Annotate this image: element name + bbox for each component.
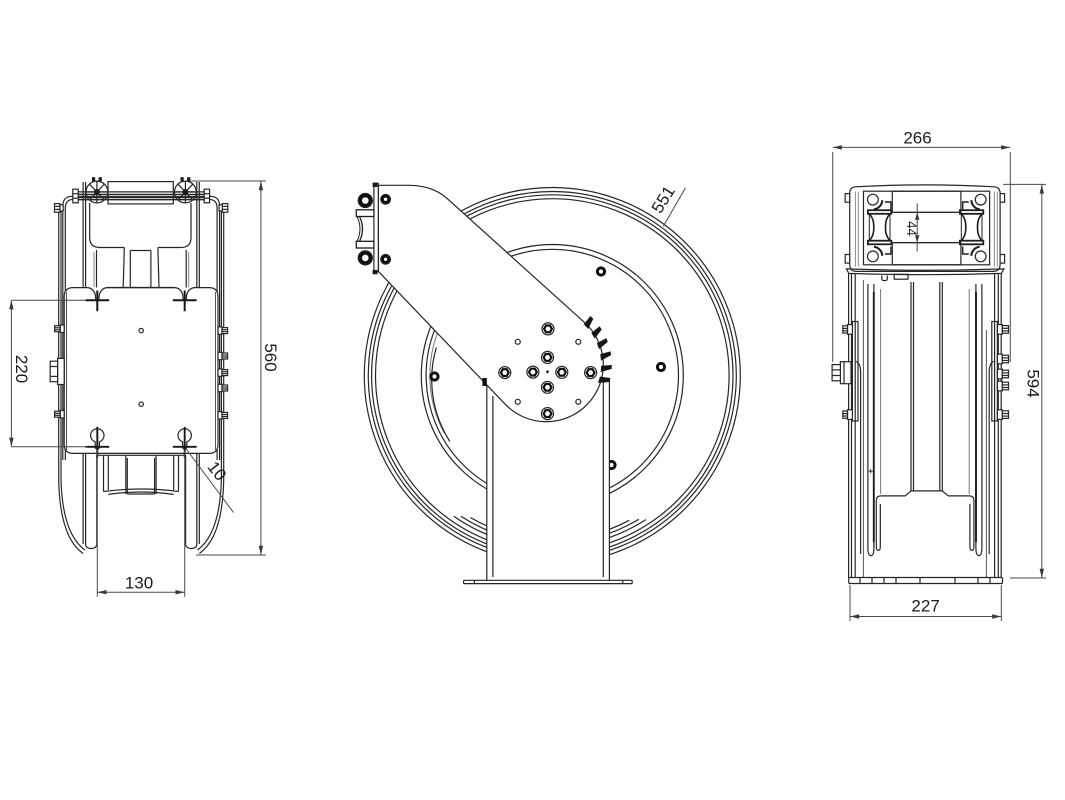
svg-text:130: 130 bbox=[125, 574, 153, 593]
svg-text:594: 594 bbox=[1024, 369, 1043, 397]
svg-text:227: 227 bbox=[911, 597, 939, 616]
svg-text:266: 266 bbox=[903, 129, 931, 148]
svg-text:44: 44 bbox=[904, 221, 919, 237]
svg-text:560: 560 bbox=[261, 343, 280, 371]
svg-text:220: 220 bbox=[12, 355, 31, 383]
